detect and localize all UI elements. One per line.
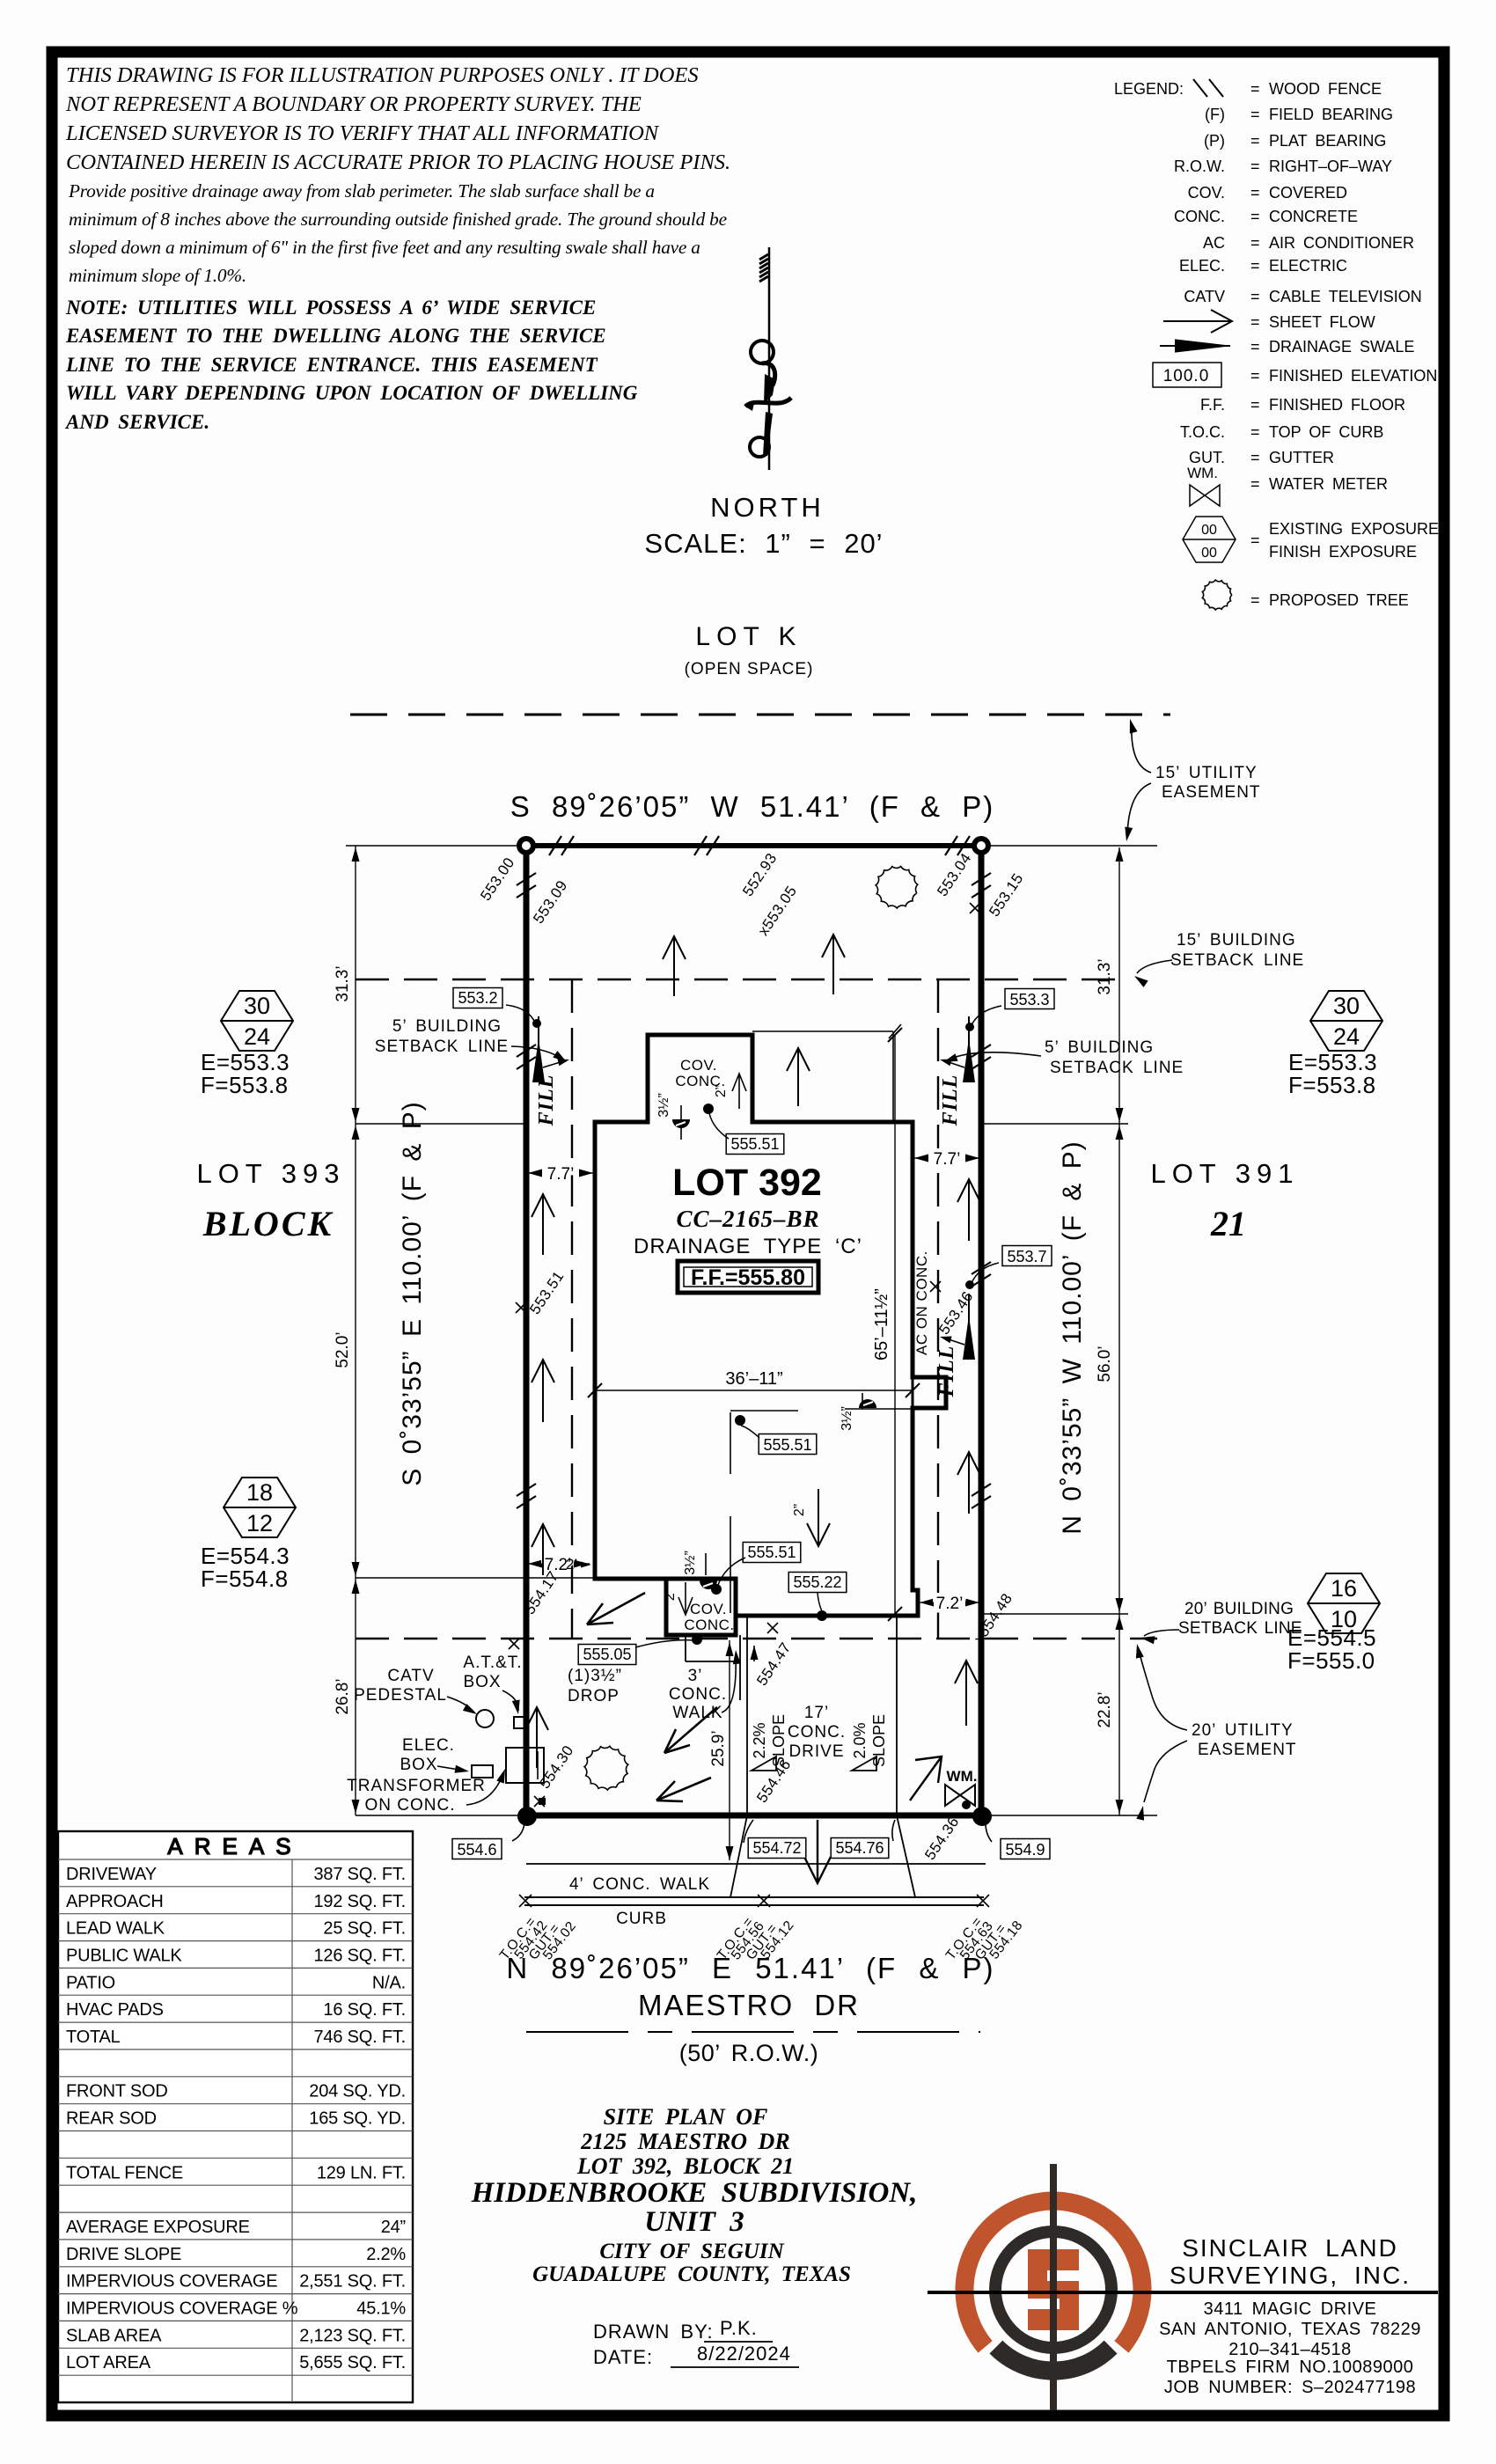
svg-text:100.0: 100.0 xyxy=(1163,367,1210,385)
svg-text:8/22/2024: 8/22/2024 xyxy=(697,2343,791,2365)
svg-text:2125 MAESTRO DR: 2125 MAESTRO DR xyxy=(580,2129,789,2154)
svg-text:15’ BUILDING: 15’ BUILDING xyxy=(1177,931,1296,950)
svg-text:EASEMENT: EASEMENT xyxy=(1198,1741,1297,1759)
svg-text:CONCRETE: CONCRETE xyxy=(1269,208,1358,225)
svg-text:SHEET FLOW: SHEET FLOW xyxy=(1269,313,1375,331)
svg-text:COV.: COV. xyxy=(680,1057,717,1074)
svg-text:=: = xyxy=(1250,234,1260,252)
svg-text:554.6: 554.6 xyxy=(457,1841,496,1859)
svg-text:=: = xyxy=(1250,106,1260,123)
svg-text:SETBACK LINE: SETBACK LINE xyxy=(1170,951,1304,970)
svg-text:SITE PLAN OF: SITE PLAN OF xyxy=(604,2104,768,2130)
svg-text:2”: 2” xyxy=(714,1085,729,1097)
svg-text:TRANSFORMER: TRANSFORMER xyxy=(347,1777,486,1795)
svg-text:7.7’: 7.7’ xyxy=(934,1150,961,1169)
svg-text:746 SQ. FT.: 746 SQ. FT. xyxy=(313,2028,406,2047)
svg-text:T.O.C.: T.O.C. xyxy=(1180,423,1225,441)
svg-text:AC ON CONC.: AC ON CONC. xyxy=(913,1250,930,1355)
svg-text:65’–11½”: 65’–11½” xyxy=(872,1288,891,1360)
svg-text:00: 00 xyxy=(1201,546,1217,561)
svg-text:3’: 3’ xyxy=(688,1667,703,1685)
svg-text:=: = xyxy=(1250,449,1260,466)
svg-text:387 SQ. FT.: 387 SQ. FT. xyxy=(313,1865,406,1884)
svg-text:555.51: 555.51 xyxy=(730,1135,779,1153)
svg-text:HIDDENBROOKE SUBDIVISION,: HIDDENBROOKE SUBDIVISION, xyxy=(471,2177,918,2209)
svg-text:18: 18 xyxy=(246,1479,273,1506)
svg-text:F=553.8: F=553.8 xyxy=(1288,1072,1376,1098)
svg-text:TOTAL: TOTAL xyxy=(66,2028,121,2047)
svg-text:S 89˚26’05” W 51.41’ (F & P): S 89˚26’05” W 51.41’ (F & P) xyxy=(510,790,994,823)
svg-text:AREAS: AREAS xyxy=(167,1833,302,1859)
svg-text:MAESTRO DR: MAESTRO DR xyxy=(638,1989,860,2021)
svg-text:=: = xyxy=(1250,132,1260,150)
svg-text:UNIT 3: UNIT 3 xyxy=(644,2206,744,2238)
svg-text:BLOCK: BLOCK xyxy=(202,1204,334,1243)
svg-text:45.1%: 45.1% xyxy=(356,2299,406,2319)
svg-text:36’–11”: 36’–11” xyxy=(725,1369,782,1389)
svg-text:=: = xyxy=(1250,423,1260,441)
svg-text:R.O.W.: R.O.W. xyxy=(1174,158,1225,175)
svg-text:554.72: 554.72 xyxy=(752,1839,801,1857)
svg-text:EASEMENT: EASEMENT xyxy=(1162,783,1261,802)
svg-text:26.8’: 26.8’ xyxy=(334,1678,352,1714)
svg-text:(1)3½”: (1)3½” xyxy=(568,1667,622,1685)
svg-text:192 SQ. FT.: 192 SQ. FT. xyxy=(313,1892,406,1911)
svg-text:SETBACK LINE: SETBACK LINE xyxy=(1050,1059,1184,1077)
svg-text:21: 21 xyxy=(1210,1204,1246,1243)
svg-text:CC–2165–BR: CC–2165–BR xyxy=(676,1206,819,1232)
svg-text:DRIVE: DRIVE xyxy=(788,1742,844,1761)
svg-text:F.F.=555.80: F.F.=555.80 xyxy=(691,1265,805,1290)
svg-text:CONC.: CONC. xyxy=(669,1685,727,1704)
svg-text:SURVEYING, INC.: SURVEYING, INC. xyxy=(1170,2262,1411,2289)
svg-text:CONTAINED HEREIN IS ACCURATE P: CONTAINED HEREIN IS ACCURATE PRIOR TO PL… xyxy=(66,150,730,174)
svg-text:SLAB AREA: SLAB AREA xyxy=(66,2326,162,2345)
svg-text:7.7’: 7.7’ xyxy=(547,1165,575,1184)
svg-text:30: 30 xyxy=(1333,993,1360,1019)
svg-text:LOT 392: LOT 392 xyxy=(672,1162,822,1204)
svg-text:LEGEND:: LEGEND: xyxy=(1114,80,1184,98)
svg-text:AND SERVICE.: AND SERVICE. xyxy=(64,411,209,433)
svg-text:555.51: 555.51 xyxy=(763,1436,811,1454)
svg-text:31.3’: 31.3’ xyxy=(334,965,352,1001)
svg-text:Provide positive drainage away: Provide positive drainage away from slab… xyxy=(68,180,655,202)
svg-text:SETBACK LINE: SETBACK LINE xyxy=(375,1038,509,1056)
svg-text:2,123 SQ. FT.: 2,123 SQ. FT. xyxy=(299,2326,406,2345)
svg-text:2.0%: 2.0% xyxy=(851,1722,869,1758)
svg-text:2.2%: 2.2% xyxy=(751,1722,768,1758)
svg-text:CONC.: CONC. xyxy=(788,1723,846,1742)
svg-text:31.3’: 31.3’ xyxy=(1096,958,1114,994)
svg-text:PLAT BEARING: PLAT BEARING xyxy=(1269,132,1386,150)
svg-text:RIGHT–OF–WAY: RIGHT–OF–WAY xyxy=(1269,158,1392,175)
svg-text:F=553.8: F=553.8 xyxy=(201,1072,289,1098)
svg-text:CONC.: CONC. xyxy=(684,1617,734,1633)
svg-text:N/A.: N/A. xyxy=(372,1973,406,1992)
svg-text:WATER METER: WATER METER xyxy=(1269,475,1388,493)
svg-text:DRAINAGE SWALE: DRAINAGE SWALE xyxy=(1269,338,1414,356)
svg-text:555.22: 555.22 xyxy=(793,1573,841,1591)
svg-text:553.3: 553.3 xyxy=(1009,991,1049,1008)
svg-text:210–341–4518: 210–341–4518 xyxy=(1228,2340,1351,2359)
svg-text:minimum slope of 1.0%.: minimum slope of 1.0%. xyxy=(69,265,246,286)
svg-text:FINISHED FLOOR: FINISHED FLOOR xyxy=(1269,396,1405,414)
svg-text:00: 00 xyxy=(1201,523,1217,538)
svg-text:30: 30 xyxy=(244,993,270,1019)
svg-text:16: 16 xyxy=(1331,1575,1357,1602)
svg-text:LOT 392, BLOCK 21: LOT 392, BLOCK 21 xyxy=(576,2153,794,2179)
svg-text:EXISTING EXPOSURE: EXISTING EXPOSURE xyxy=(1269,520,1439,538)
svg-text:TOP OF CURB: TOP OF CURB xyxy=(1269,423,1383,441)
svg-text:FINISHED ELEVATION: FINISHED ELEVATION xyxy=(1269,367,1437,385)
svg-text:LOT K: LOT K xyxy=(695,622,802,651)
svg-text:=: = xyxy=(1250,338,1260,356)
svg-text:PATIO: PATIO xyxy=(66,1973,115,1992)
svg-text:P.K.: P.K. xyxy=(720,2317,758,2339)
svg-text:3½”: 3½” xyxy=(656,1093,671,1118)
svg-text:ELEC.: ELEC. xyxy=(402,1736,455,1755)
svg-text:3½”: 3½” xyxy=(840,1406,854,1431)
svg-text:DRIVE SLOPE: DRIVE SLOPE xyxy=(66,2245,181,2264)
svg-text:GUTTER: GUTTER xyxy=(1269,449,1334,466)
svg-text:SETBACK LINE: SETBACK LINE xyxy=(1178,1619,1302,1638)
svg-text:F=555.0: F=555.0 xyxy=(1287,1647,1375,1674)
svg-text:SINCLAIR LAND: SINCLAIR LAND xyxy=(1182,2234,1398,2262)
svg-text:TBPELS FIRM NO.10089000: TBPELS FIRM NO.10089000 xyxy=(1167,2358,1414,2377)
svg-text:DROP: DROP xyxy=(568,1687,620,1705)
svg-text:24: 24 xyxy=(244,1023,270,1050)
svg-text:=: = xyxy=(1250,257,1260,275)
svg-text:=: = xyxy=(1250,80,1260,98)
svg-text:A.T.&T.: A.T.&T. xyxy=(463,1654,522,1672)
svg-text:S 0˚33’55” E 110.00’ (F & P): S 0˚33’55” E 110.00’ (F & P) xyxy=(398,1101,427,1486)
svg-text:F=554.8: F=554.8 xyxy=(201,1566,289,1592)
svg-text:126 SQ. FT.: 126 SQ. FT. xyxy=(313,1947,406,1966)
svg-text:129 LN. FT.: 129 LN. FT. xyxy=(317,2163,406,2182)
svg-text:GUT.: GUT. xyxy=(1189,449,1225,466)
svg-text:555.05: 555.05 xyxy=(583,1646,631,1663)
svg-text:APPROACH: APPROACH xyxy=(66,1892,164,1911)
svg-text:BOX: BOX xyxy=(400,1756,437,1774)
svg-text:=: = xyxy=(1250,475,1260,493)
svg-text:25.9’: 25.9’ xyxy=(709,1730,728,1766)
svg-text:WM.: WM. xyxy=(947,1768,978,1785)
svg-text:=: = xyxy=(1250,367,1260,385)
svg-text:(P): (P) xyxy=(1204,132,1225,150)
svg-text:PEDESTAL: PEDESTAL xyxy=(354,1686,447,1705)
svg-text:16 SQ. FT.: 16 SQ. FT. xyxy=(323,2000,406,2020)
svg-text:N 0˚33’55” W 110.00’ (F & P): N 0˚33’55” W 110.00’ (F & P) xyxy=(1058,1140,1087,1534)
svg-text:=: = xyxy=(1250,396,1260,414)
svg-text:ELEC.: ELEC. xyxy=(1179,257,1225,275)
svg-text:REAR SOD: REAR SOD xyxy=(66,2109,157,2129)
svg-text:NOTE: UTILITIES WILL POSSES: NOTE: UTILITIES WILL POSSESS A 6’ WIDE S… xyxy=(65,297,596,319)
svg-text:LOT 393: LOT 393 xyxy=(196,1158,345,1189)
svg-text:25 SQ. FT.: 25 SQ. FT. xyxy=(323,1919,406,1939)
svg-text:=: = xyxy=(1250,532,1260,549)
svg-text:20’ UTILITY: 20’ UTILITY xyxy=(1192,1721,1294,1740)
svg-text:CATV: CATV xyxy=(1184,288,1225,305)
svg-text:IMPERVIOUS COVERAGE: IMPERVIOUS COVERAGE xyxy=(66,2272,277,2292)
svg-text:(F): (F) xyxy=(1205,106,1225,123)
svg-text:LOT 391: LOT 391 xyxy=(1150,1158,1299,1189)
svg-text:=: = xyxy=(1250,288,1260,305)
svg-text:2,551 SQ. FT.: 2,551 SQ. FT. xyxy=(299,2272,406,2292)
svg-text:AVERAGE EXPOSURE: AVERAGE EXPOSURE xyxy=(66,2218,250,2237)
svg-text:FIELD BEARING: FIELD BEARING xyxy=(1269,106,1393,123)
svg-text:TOTAL FENCE: TOTAL FENCE xyxy=(66,2163,183,2182)
svg-text:17’: 17’ xyxy=(804,1704,829,1722)
svg-text:=: = xyxy=(1250,158,1260,175)
svg-text:5,655 SQ. FT.: 5,655 SQ. FT. xyxy=(299,2353,406,2372)
svg-text:FILL: FILL xyxy=(935,1346,958,1398)
svg-text:24: 24 xyxy=(1333,1023,1360,1050)
svg-text:CABLE TELEVISION: CABLE TELEVISION xyxy=(1269,288,1422,305)
svg-text:LICENSED SURVEYOR IS TO VERIFY: LICENSED SURVEYOR IS TO VERIFY THAT ALL … xyxy=(65,121,660,145)
svg-text:LINE TO THE SERVICE ENTRAN: LINE TO THE SERVICE ENTRANCE. THIS EASEM… xyxy=(65,354,598,376)
svg-text:SAN ANTONIO, TEXAS 78229: SAN ANTONIO, TEXAS 78229 xyxy=(1159,2320,1421,2339)
svg-text:PROPOSED TREE: PROPOSED TREE xyxy=(1269,591,1409,609)
svg-text:minimum of 8 inches above the: minimum of 8 inches above the surroundin… xyxy=(69,209,727,230)
svg-text:NORTH: NORTH xyxy=(710,492,825,523)
svg-text:THIS DRAWING IS FOR ILLUSTRATI: THIS DRAWING IS FOR ILLUSTRATION PURPOSE… xyxy=(66,63,699,87)
svg-text:ON CONC.: ON CONC. xyxy=(365,1796,456,1815)
svg-text:CONC.: CONC. xyxy=(1174,208,1225,225)
svg-text:WOOD FENCE: WOOD FENCE xyxy=(1269,80,1382,98)
svg-text:HVAC PADS: HVAC PADS xyxy=(66,2000,164,2020)
svg-text:DRAWN BY:: DRAWN BY: xyxy=(593,2321,714,2343)
svg-text:=: = xyxy=(1250,313,1260,331)
svg-text:SCALE: 1” = 20’: SCALE: 1” = 20’ xyxy=(644,528,883,559)
svg-text:WM.: WM. xyxy=(1187,465,1218,481)
svg-text:(OPEN SPACE): (OPEN SPACE) xyxy=(685,660,814,678)
svg-text:=: = xyxy=(1250,184,1260,202)
svg-text:204 SQ. YD.: 204 SQ. YD. xyxy=(309,2082,406,2101)
svg-text:GUADALUPE COUNTY, TEXAS: GUADALUPE COUNTY, TEXAS xyxy=(532,2262,851,2286)
svg-text:WILL VARY DEPENDING UPON L: WILL VARY DEPENDING UPON LOCATION OF DWE… xyxy=(66,382,638,404)
svg-text:IMPERVIOUS COVERAGE %: IMPERVIOUS COVERAGE % xyxy=(66,2299,298,2319)
svg-text:FILL: FILL xyxy=(939,1074,962,1127)
svg-text:BOX: BOX xyxy=(463,1673,501,1691)
svg-text:ELECTRIC: ELECTRIC xyxy=(1269,257,1347,275)
svg-text:24”: 24” xyxy=(381,2218,406,2237)
svg-text:FILL: FILL xyxy=(535,1074,558,1127)
svg-text:COV.: COV. xyxy=(1188,184,1225,202)
svg-text:CATV: CATV xyxy=(387,1667,434,1685)
svg-text:AIR CONDITIONER: AIR CONDITIONER xyxy=(1269,234,1414,252)
svg-text:3½”: 3½” xyxy=(683,1551,698,1575)
svg-text:CITY OF SEGUIN: CITY OF SEGUIN xyxy=(599,2240,784,2263)
svg-text:DRAINAGE TYPE ‘C’: DRAINAGE TYPE ‘C’ xyxy=(634,1235,862,1258)
svg-text:N 89˚26’05” E 51.41’ (F & P): N 89˚26’05” E 51.41’ (F & P) xyxy=(506,1952,994,1984)
svg-text:2’: 2’ xyxy=(566,1556,577,1573)
svg-text:sloped down a minimum of 6" in: sloped down a minimum of 6" in the first… xyxy=(69,237,700,258)
svg-text:WALK: WALK xyxy=(672,1704,722,1722)
svg-text:LEAD WALK: LEAD WALK xyxy=(66,1919,165,1939)
svg-text:DATE:: DATE: xyxy=(593,2346,653,2368)
svg-text:3411 MAGIC DRIVE: 3411 MAGIC DRIVE xyxy=(1204,2299,1377,2319)
svg-text:AC: AC xyxy=(1203,234,1225,252)
svg-text:EASEMENT TO THE DWELLING A: EASEMENT TO THE DWELLING ALONG THE SERVI… xyxy=(65,325,606,347)
svg-text:22.8’: 22.8’ xyxy=(1096,1691,1114,1727)
svg-text:2.2%: 2.2% xyxy=(366,2245,406,2264)
svg-text:165 SQ. YD.: 165 SQ. YD. xyxy=(309,2109,406,2129)
svg-text:(50’ R.O.W.): (50’ R.O.W.) xyxy=(679,2040,819,2066)
svg-text:554.76: 554.76 xyxy=(835,1839,884,1857)
svg-text:4’ CONC. WALK: 4’ CONC. WALK xyxy=(569,1875,710,1894)
svg-text:7.2’: 7.2’ xyxy=(936,1595,964,1613)
svg-text:FINISH EXPOSURE: FINISH EXPOSURE xyxy=(1269,543,1417,561)
svg-text:12: 12 xyxy=(246,1510,273,1536)
svg-text:52.0’: 52.0’ xyxy=(334,1331,352,1368)
svg-text:NOT REPRESENT A BOUNDARY OR PR: NOT REPRESENT A BOUNDARY OR PROPERTY SUR… xyxy=(65,92,642,116)
svg-text:553.2: 553.2 xyxy=(458,989,497,1007)
svg-text:553.7: 553.7 xyxy=(1007,1248,1046,1265)
svg-text:20’ BUILDING: 20’ BUILDING xyxy=(1184,1600,1294,1618)
svg-text:=: = xyxy=(1250,591,1260,609)
svg-text:5’ BUILDING: 5’ BUILDING xyxy=(1045,1038,1154,1057)
svg-text:15’ UTILITY: 15’ UTILITY xyxy=(1155,764,1258,782)
svg-text:555.51: 555.51 xyxy=(747,1544,796,1561)
svg-text:COVERED: COVERED xyxy=(1269,184,1347,202)
svg-text:2”: 2” xyxy=(663,1588,678,1601)
svg-text:CURB: CURB xyxy=(616,1910,667,1928)
svg-text:LOT AREA: LOT AREA xyxy=(66,2353,151,2372)
svg-text:F.F.: F.F. xyxy=(1200,396,1225,414)
svg-text:FRONT SOD: FRONT SOD xyxy=(66,2082,168,2101)
svg-text:5’ BUILDING: 5’ BUILDING xyxy=(392,1017,502,1036)
svg-text:JOB NUMBER: S–202477198: JOB NUMBER: S–202477198 xyxy=(1164,2378,1416,2397)
svg-text:COV.: COV. xyxy=(690,1601,727,1617)
svg-text:554.9: 554.9 xyxy=(1005,1841,1045,1859)
svg-text:56.0’: 56.0’ xyxy=(1096,1346,1114,1382)
svg-text:PUBLIC WALK: PUBLIC WALK xyxy=(66,1947,182,1966)
svg-text:2”: 2” xyxy=(792,1504,807,1516)
svg-text:DRIVEWAY: DRIVEWAY xyxy=(66,1865,157,1884)
svg-text:=: = xyxy=(1250,208,1260,225)
